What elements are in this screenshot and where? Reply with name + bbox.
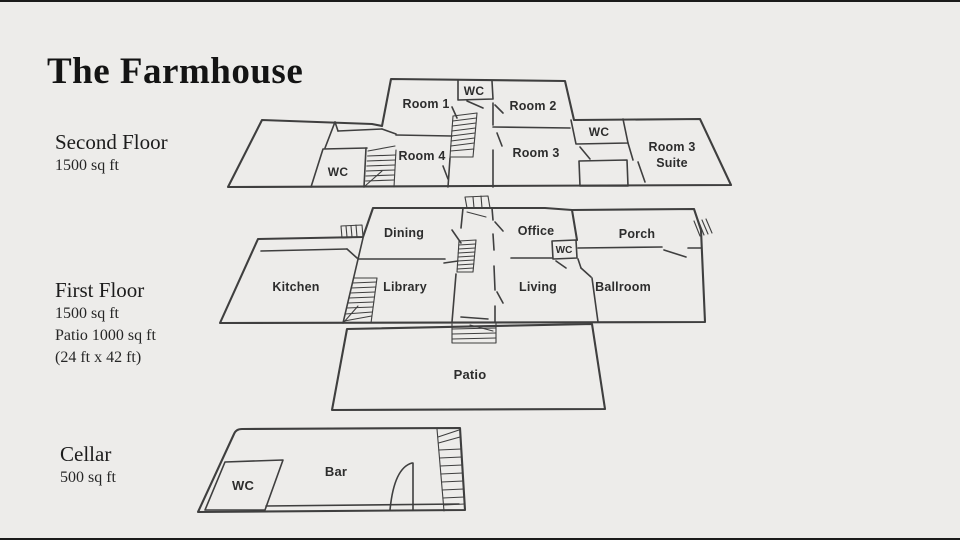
room-label-kitchen: Kitchen (272, 280, 319, 294)
second-floor-plan: WC Room 1 Room 2 Room 4 Room 3 WC WC Roo… (228, 79, 731, 187)
second-floor-left-staircase (365, 146, 396, 187)
room-label-room1: Room 1 (402, 97, 449, 111)
porch-steps (694, 219, 712, 236)
first-floor-outline (220, 208, 705, 323)
room-label-wc-right: WC (589, 125, 610, 139)
floor-plan-drawing: WC Room 1 Room 2 Room 4 Room 3 WC WC Roo… (0, 0, 960, 540)
room-label-wc-top: WC (464, 84, 485, 98)
room-label-wc-first: WC (556, 245, 573, 256)
room-label-wc-cellar: WC (232, 478, 254, 493)
room-label-patio: Patio (454, 367, 487, 382)
room-label-suite-2: Suite (656, 156, 688, 170)
front-entry-steps (465, 196, 490, 217)
room-label-suite-1: Room 3 (648, 140, 695, 154)
room-label-room3: Room 3 (512, 146, 559, 160)
room-label-porch: Porch (619, 227, 655, 241)
slide: The Farmhouse Second Floor 1500 sq ft Fi… (0, 0, 960, 540)
second-floor-center-staircase (450, 113, 477, 157)
room-label-dining: Dining (384, 226, 424, 240)
cellar-plan: WC Bar (198, 428, 465, 512)
room-label-wc-left: WC (328, 165, 349, 179)
first-floor-walls (261, 208, 701, 323)
room-label-room4: Room 4 (398, 149, 445, 163)
room-label-living: Living (519, 280, 557, 294)
room-label-ballroom: Ballroom (595, 280, 651, 294)
room-label-bar: Bar (325, 464, 347, 479)
first-floor-plan: Dining Office Porch WC Kitchen Library L… (220, 196, 712, 410)
room-label-room2: Room 2 (509, 99, 556, 113)
room-label-library: Library (383, 280, 427, 294)
room-label-office: Office (518, 224, 555, 238)
first-floor-center-staircase (457, 240, 476, 272)
